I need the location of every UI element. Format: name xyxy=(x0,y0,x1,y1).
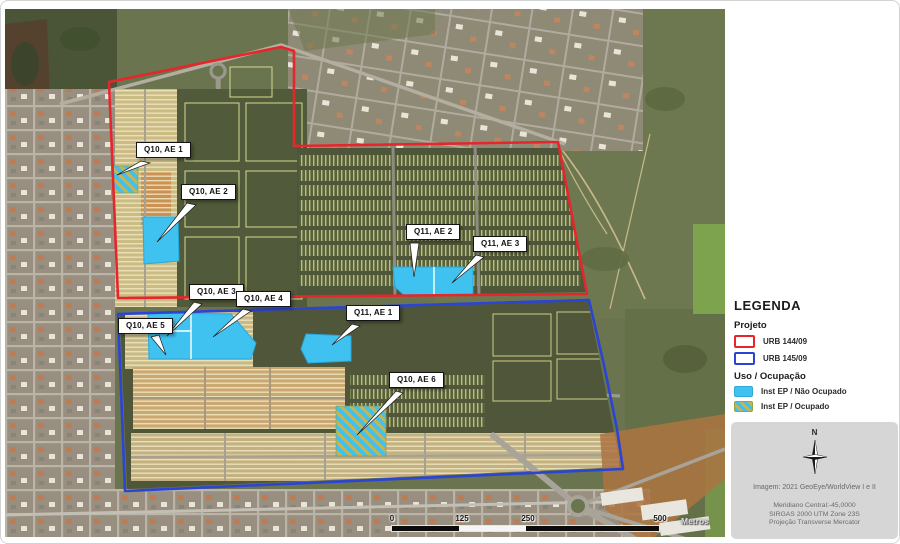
urb-144-label: URB 144/09 xyxy=(763,337,807,346)
legend-item-urb-144: URB 144/09 xyxy=(734,335,896,348)
legend-item-nao-ocupado: Inst EP / Não Ocupado xyxy=(734,386,896,397)
map-annotation-q10-ae5: Q10, AE 5 xyxy=(118,318,173,334)
legend-item-ocupado: Inst EP / Ocupado xyxy=(734,401,896,412)
inst-ep-area-q11-ae1 xyxy=(301,334,351,363)
legend-item-urb-145: URB 145/09 xyxy=(734,352,896,365)
satellite-basemap xyxy=(5,9,725,537)
legend-heading-projeto: Projeto xyxy=(734,320,896,331)
scalebar-unit: Metros xyxy=(681,516,709,526)
legend: LEGENDA Projeto URB 144/09 URB 145/09 Us… xyxy=(734,298,896,416)
projection-line-datum: SIRGAS 2000 UTM Zone 23S xyxy=(731,511,898,520)
scalebar-bar xyxy=(392,526,659,531)
inst-ep-ocupado-swatch xyxy=(734,401,753,412)
scalebar-tick-0: 0 xyxy=(390,514,394,523)
map-annotation-q11-ae3: Q11, AE 3 xyxy=(473,236,527,252)
north-arrow: N xyxy=(731,428,898,482)
map-annotation-q11-ae2: Q11, AE 2 xyxy=(406,224,460,240)
legend-heading-uso: Uso / Ocupação xyxy=(734,371,896,382)
map-annotation-q10-ae1: Q10, AE 1 xyxy=(136,142,191,158)
map-info-panel: N Imagem: 2021 GeoEye/WorldView I e II M… xyxy=(731,422,898,539)
scalebar-tick-250: 250 xyxy=(521,514,534,523)
inst-ep-nao-ocupado-swatch xyxy=(734,386,753,397)
satellite-map: Q10, AE 1 Q10, AE 2 Q11, AE 2 Q11, AE 3 … xyxy=(5,9,725,537)
compass-icon xyxy=(795,437,835,477)
legend-title: LEGENDA xyxy=(734,298,896,313)
urb-145-label: URB 145/09 xyxy=(763,354,807,363)
urban-area-north xyxy=(288,9,643,151)
inst-ep-area-q11-ae2-3 xyxy=(393,267,473,296)
inst-ep-ocupado-label: Inst EP / Ocupado xyxy=(761,402,829,411)
map-annotation-q10-ae4: Q10, AE 4 xyxy=(236,291,291,307)
inst-ep-nao-ocupado-label: Inst EP / Não Ocupado xyxy=(761,387,847,396)
urb-145-swatch xyxy=(734,352,755,365)
urb-144-swatch xyxy=(734,335,755,348)
imagery-credit: Imagem: 2021 GeoEye/WorldView I e II xyxy=(731,484,898,491)
scalebar-tick-500: 500 xyxy=(653,514,666,523)
projection-info: Meridiano Central:-45,0000 SIRGAS 2000 U… xyxy=(731,502,898,528)
urban-area-west xyxy=(5,89,115,537)
scalebar-tick-125: 125 xyxy=(455,514,468,523)
map-annotation-q11-ae1: Q11, AE 1 xyxy=(346,305,400,321)
map-report-figure: Q10, AE 1 Q10, AE 2 Q11, AE 2 Q11, AE 3 … xyxy=(0,0,900,544)
projection-line-meridian: Meridiano Central:-45,0000 xyxy=(731,502,898,511)
map-annotation-q10-ae2: Q10, AE 2 xyxy=(181,184,236,200)
map-annotation-q10-ae6: Q10, AE 6 xyxy=(389,372,444,388)
projection-line-projection: Projeção Transverse Mercator xyxy=(731,519,898,528)
north-label: N xyxy=(731,428,898,437)
